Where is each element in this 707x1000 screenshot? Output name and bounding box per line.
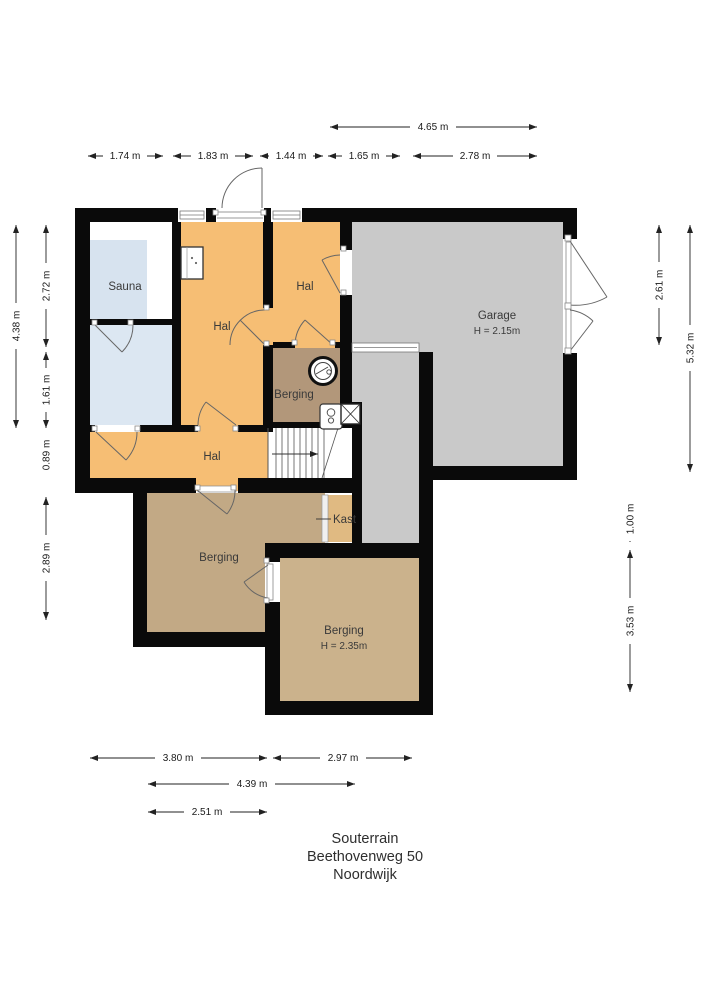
label-hal-top: Hal xyxy=(296,281,313,293)
dim-left-272: 2.72 m xyxy=(40,225,53,347)
svg-text:1.44 m: 1.44 m xyxy=(276,151,307,162)
floorplan-page: Sauna Hal Hal Hal Garage H = 2.15m Bergi… xyxy=(0,0,707,1000)
dim-right-353: 3.53 m xyxy=(624,550,637,692)
svg-text:4.39 m: 4.39 m xyxy=(237,779,268,790)
dim-left-089: 0.89 m xyxy=(40,433,53,477)
dim-top-183: 1.83 m xyxy=(173,149,253,162)
dim-bottom-251: 2.51 m xyxy=(148,805,267,818)
plan-title: Souterrain Beethovenweg 50 Noordwijk xyxy=(307,831,423,883)
dim-bottom-439: 4.39 m xyxy=(148,777,355,790)
dim-left-438: 4.38 m xyxy=(10,225,23,428)
window-icon xyxy=(178,208,206,222)
dim-left-289: 2.89 m xyxy=(40,497,53,620)
svg-text:0.89 m: 0.89 m xyxy=(42,440,53,471)
garage-door-opening xyxy=(563,239,577,353)
svg-text:1.74 m: 1.74 m xyxy=(110,151,141,162)
kast-divider xyxy=(322,495,328,542)
entrance-opening xyxy=(216,208,264,222)
garage-strip-window-icon xyxy=(352,343,419,352)
dim-top-165: 1.65 m xyxy=(328,149,400,162)
svg-text:Kast: Kast xyxy=(333,514,357,526)
svg-text:2.97 m: 2.97 m xyxy=(328,753,359,764)
water-heater-icon xyxy=(320,404,342,429)
dim-top-174: 1.74 m xyxy=(88,149,163,162)
label-sauna: Sauna xyxy=(108,281,142,293)
label-berging-left: Berging xyxy=(199,552,239,564)
stairs-area xyxy=(268,428,352,478)
boiler-circle-icon xyxy=(310,358,337,385)
hal-berging-threshold xyxy=(198,486,236,492)
label-garage-height: H = 2.15m xyxy=(474,326,520,337)
svg-text:5.32 m: 5.32 m xyxy=(686,333,697,364)
title-city: Noordwijk xyxy=(333,867,397,883)
dim-right-100: 1.00 m xyxy=(624,497,637,542)
label-berging-small: Berging xyxy=(274,389,314,401)
svg-text:2.61 m: 2.61 m xyxy=(655,270,666,301)
svg-text:1.65 m: 1.65 m xyxy=(349,151,380,162)
dim-top-278: 2.78 m xyxy=(413,149,537,162)
dim-top-144: 1.44 m xyxy=(260,149,323,162)
dim-bottom-380: 3.80 m xyxy=(90,751,267,764)
title-floor: Souterrain xyxy=(332,831,399,847)
title-address: Beethovenweg 50 xyxy=(307,849,423,865)
label-berging-bottom-height: H = 2.35m xyxy=(321,641,367,652)
dim-right-532: 5.32 m xyxy=(684,225,697,472)
dim-bottom-297: 2.97 m xyxy=(273,751,412,764)
room-blue xyxy=(90,325,172,425)
svg-text:1.83 m: 1.83 m xyxy=(198,151,229,162)
svg-text:3.53 m: 3.53 m xyxy=(626,606,637,637)
svg-text:4.65 m: 4.65 m xyxy=(418,122,449,133)
shaft-cross-icon xyxy=(341,404,360,424)
window-icon xyxy=(271,208,302,222)
svg-text:2.51 m: 2.51 m xyxy=(192,807,223,818)
svg-text:2.78 m: 2.78 m xyxy=(460,151,491,162)
entrance-door-icon xyxy=(222,168,262,208)
room-hal-lower xyxy=(90,432,268,478)
svg-text:4.38 m: 4.38 m xyxy=(12,311,23,342)
dim-left-161: 1.61 m xyxy=(40,352,53,428)
svg-text:2.72 m: 2.72 m xyxy=(42,271,53,302)
label-berging-bottom: Berging xyxy=(324,625,364,637)
garage-strip xyxy=(362,352,419,543)
label-hal-main: Hal xyxy=(213,321,230,333)
floor-plan-svg: Sauna Hal Hal Hal Garage H = 2.15m Bergi… xyxy=(0,0,707,1000)
dim-top-465: 4.65 m xyxy=(330,120,537,133)
room-sauna xyxy=(90,240,147,319)
appliance-cabinet-icon xyxy=(181,247,203,279)
svg-text:1.61 m: 1.61 m xyxy=(42,375,53,406)
dim-right-261: 2.61 m xyxy=(653,225,666,345)
label-garage: Garage xyxy=(478,310,516,322)
svg-text:1.00 m: 1.00 m xyxy=(626,504,637,535)
svg-text:2.89 m: 2.89 m xyxy=(42,543,53,574)
svg-text:3.80 m: 3.80 m xyxy=(163,753,194,764)
label-hal-lower: Hal xyxy=(203,451,220,463)
